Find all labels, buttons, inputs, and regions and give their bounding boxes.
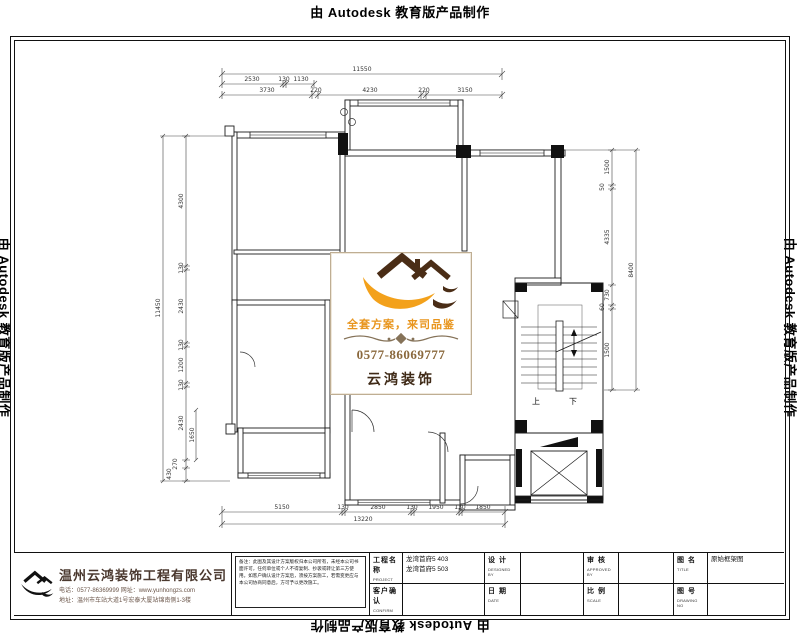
dim-label: 1200 <box>178 357 185 372</box>
field-sublabel: SCALE <box>587 598 615 603</box>
dim-label: 2430 <box>178 415 185 430</box>
dim-label: 130 <box>178 379 185 391</box>
company-name: 温州云鸿装饰工程有限公司 <box>59 565 227 584</box>
field-scale-value <box>619 584 674 615</box>
field-sublabel: PROJECT <box>373 577 399 582</box>
dim-label: 13220 <box>353 516 372 523</box>
dim-labels-right: 1500 50 4335 730 60 1500 8400 <box>599 159 635 357</box>
company-address-line: 地址：温州市车站大道1号宏泰大厦站锦南侧1-3楼 <box>59 595 227 604</box>
dim-label: 8400 <box>628 262 635 277</box>
field-project-value: 龙湾首府5 403 龙湾首府5 503 <box>403 553 485 584</box>
company-logo-small-icon <box>18 567 55 601</box>
ornament-divider <box>340 332 462 345</box>
project-value-2: 龙湾首府5 503 <box>406 565 481 575</box>
dim-label: 730 <box>604 289 611 301</box>
dim-label: 3730 <box>259 87 274 94</box>
field-label: 工程名称 <box>373 555 399 575</box>
company-phone-line: 电话：0577-86369999 网址：www.yunhongzs.com <box>59 585 227 594</box>
dim-label: 4335 <box>604 229 611 244</box>
field-sublabel: APPROVED BY <box>587 567 615 577</box>
field-sublabel: TITLE <box>677 567 704 572</box>
dim-label: 220 <box>418 87 430 94</box>
dim-label: 130 <box>178 339 185 351</box>
field-designed-by: 设 计 DESIGNED BY <box>485 553 521 584</box>
watermark-phone: 0577-86069777 <box>357 347 446 363</box>
field-label: 图 名 <box>677 555 704 565</box>
stair-up-label: 上 <box>532 397 540 406</box>
field-sublabel: CONFIRM <box>373 608 399 613</box>
dim-labels-top: 11550 2530 130 1130 3730 220 4230 220 31… <box>244 66 472 94</box>
dim-label: 11450 <box>155 298 162 317</box>
dim-lines-left <box>160 134 232 483</box>
dim-label: 130 <box>278 76 290 83</box>
dim-label: 1500 <box>604 159 611 174</box>
dim-label: 2850 <box>370 504 385 511</box>
dim-label: 130 <box>178 262 185 274</box>
dim-label: 60 <box>599 303 606 311</box>
dim-label: 1950 <box>428 504 443 511</box>
dim-label: 1650 <box>189 427 196 442</box>
dim-label: 430 <box>166 468 173 480</box>
title-block: 温州云鸿装饰工程有限公司 电话：0577-86369999 网址：www.yun… <box>14 552 784 615</box>
drawing-title-value: 原始框架图 <box>711 555 781 565</box>
field-confirm-value <box>403 584 485 615</box>
dim-label: 3150 <box>457 87 472 94</box>
field-project-label: 工程名称 PROJECT <box>370 553 403 584</box>
field-label: 日 期 <box>488 586 517 596</box>
watermark-brand: 云鸿装饰 <box>367 369 435 389</box>
notes-text: 备注：此图及其设计方案版权归本公司所有，未经本公司书面许可，任何单位或个人不得复… <box>235 556 366 608</box>
dim-label: 50 <box>599 183 606 191</box>
field-label: 图 号 <box>677 586 704 596</box>
dim-label: 130 <box>454 504 466 511</box>
staircase <box>503 283 603 433</box>
drawing-sheet: 由 Autodesk 教育版产品制作 由 Autodesk 教育版产品制作 由 … <box>0 0 800 640</box>
dim-label: 4230 <box>362 87 377 94</box>
field-designed-by-value <box>521 553 584 584</box>
title-block-company: 温州云鸿装饰工程有限公司 电话：0577-86369999 网址：www.yun… <box>14 553 232 615</box>
dim-label: 2430 <box>178 298 185 313</box>
field-label: 比 例 <box>587 586 615 596</box>
watermark-slogan: 全套方案，来司品鉴 <box>347 316 455 332</box>
project-value-1: 龙湾首府5 403 <box>406 555 481 565</box>
field-drawing-title-value: 原始框架图 <box>708 553 784 584</box>
field-date-value <box>521 584 584 615</box>
title-block-fields: 工程名称 PROJECT 龙湾首府5 403 龙湾首府5 503 设 计 DES… <box>370 553 784 615</box>
elevator-shaft <box>515 433 603 503</box>
field-label: 设 计 <box>488 555 517 565</box>
dim-label: 2530 <box>244 76 259 83</box>
field-sublabel: DESIGNED BY <box>488 567 517 577</box>
dim-label: 11550 <box>352 66 371 73</box>
company-logo-icon <box>339 253 463 315</box>
title-block-notes: 备注：此图及其设计方案版权归本公司所有，未经本公司书面许可，任何单位或个人不得复… <box>232 553 370 615</box>
field-approved-by: 审 核 APPROVED BY <box>584 553 619 584</box>
dim-label: 130 <box>406 504 418 511</box>
dim-label: 220 <box>310 87 322 94</box>
dim-labels-left: 4300 130 2430 130 1200 130 2430 270 430 … <box>155 193 196 480</box>
dim-label: 270 <box>172 458 179 470</box>
dim-label: 5150 <box>274 504 289 511</box>
dim-label: 1500 <box>604 342 611 357</box>
field-drawing-no: 图 号 DRAWING NO <box>674 584 708 615</box>
dim-label: 130 <box>337 504 349 511</box>
dim-label: 4300 <box>178 193 185 208</box>
field-drawing-no-value <box>708 584 784 615</box>
field-scale: 比 例 SCALE <box>584 584 619 615</box>
field-label: 客户确认 <box>373 586 399 606</box>
field-date: 日 期 DATE <box>485 584 521 615</box>
dim-label: 1850 <box>475 504 490 511</box>
dim-labels-bottom: 5150 130 2850 130 1950 130 1850 13220 <box>274 504 490 523</box>
field-label: 审 核 <box>587 555 615 565</box>
field-approved-by-value <box>619 553 674 584</box>
field-sublabel: DRAWING NO <box>677 598 704 608</box>
stair-down-label: 下 <box>569 397 577 406</box>
company-watermark-card: 全套方案，来司品鉴 0577-86069777 云鸿装饰 <box>330 252 472 395</box>
field-sublabel: DATE <box>488 598 517 603</box>
field-confirm: 客户确认 CONFIRM <box>370 584 403 615</box>
dim-label: 1130 <box>293 76 308 83</box>
field-drawing-title: 图 名 TITLE <box>674 553 708 584</box>
